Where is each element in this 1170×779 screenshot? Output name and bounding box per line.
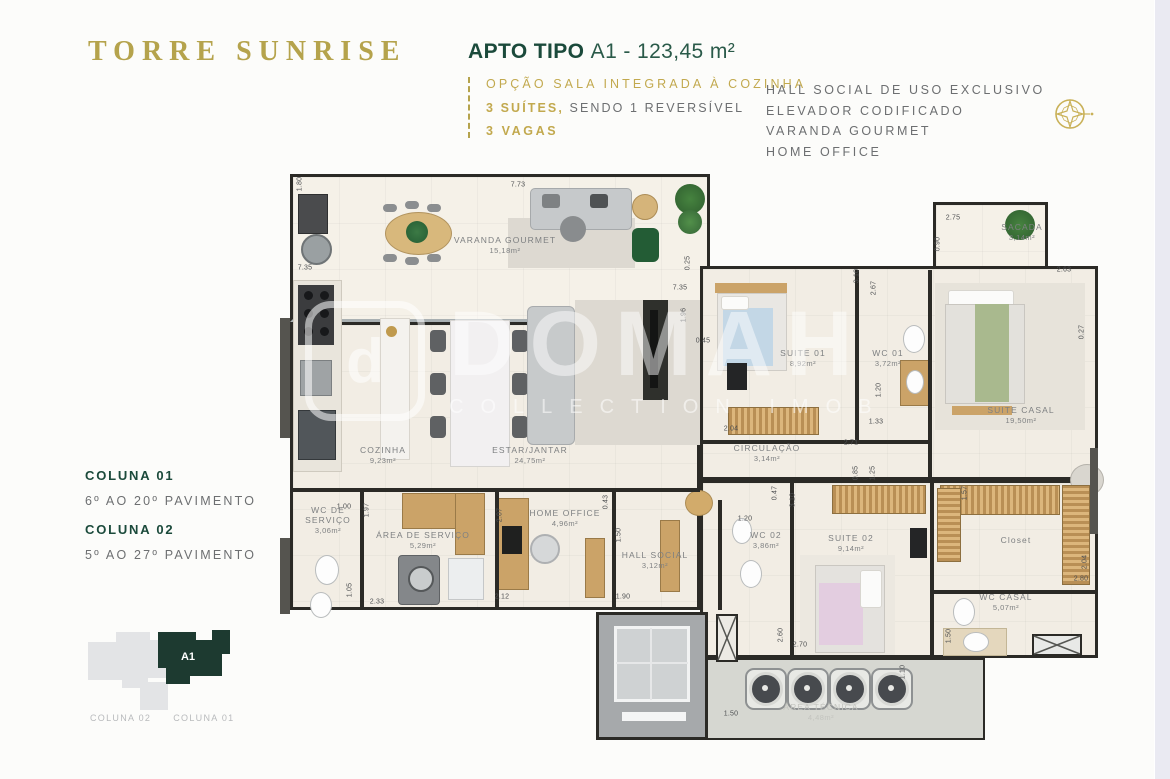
dimension-label: 0.90: [935, 237, 942, 251]
room-area: 15,18m²: [454, 246, 556, 255]
chair: [512, 330, 528, 352]
dining-chair: [427, 204, 441, 212]
monitor: [502, 526, 522, 554]
room-area: 3,86m²: [750, 541, 781, 550]
sofa-pillow: [590, 194, 608, 208]
dimension-label: 0.47: [772, 486, 779, 500]
table-plant: [406, 221, 428, 243]
ac-condenser: [871, 668, 913, 710]
apartment-title: APTO TIPO A1 - 123,45 m²: [468, 40, 768, 64]
kitchen-sink: [300, 360, 332, 396]
page: TORRE SUNRISE APTO TIPO A1 - 123,45 m² O…: [0, 0, 1170, 779]
feature-item: HOME OFFICE: [766, 142, 1045, 163]
wc-servico-sink: [310, 592, 332, 618]
dimension-label: 7.35: [298, 265, 312, 272]
laundry-tank: [448, 558, 484, 600]
room-label: Closet: [1001, 535, 1032, 545]
room-name: WC DE SERVIÇO: [305, 505, 351, 525]
wall: [930, 480, 934, 658]
wc-servico-toilet: [315, 555, 339, 585]
room-name: Closet: [1001, 535, 1032, 545]
dimension-label: 2.67: [871, 281, 878, 295]
suite02-wardrobe: [832, 485, 926, 514]
dimension-label: 2.71: [844, 440, 858, 447]
apartment-details: OPÇÃO SALA INTEGRADA À COZINHA 3 SUÍTES,…: [468, 77, 768, 138]
room-name: SUITE 02: [828, 533, 874, 543]
room-name: SUITE 01: [780, 348, 826, 358]
suite02-cover: [819, 583, 863, 645]
dimension-label: 1.50: [946, 629, 953, 643]
elevator-cab-divider-v: [650, 628, 652, 700]
vagas-line: 3 VAGAS: [486, 124, 768, 138]
room-label: HALL SOCIAL3,12m²: [622, 550, 689, 570]
dimension-label: 0.27: [1079, 325, 1086, 339]
dimension-label: 1.20: [738, 516, 752, 523]
elevator-door: [622, 712, 686, 721]
suite02-tv: [910, 528, 927, 558]
washer-door: [408, 566, 434, 592]
wine-rack: [585, 538, 605, 598]
wall: [718, 500, 722, 610]
dimension-label: 3.10: [854, 269, 861, 283]
dining-chair: [405, 257, 419, 265]
feature-item: HALL SOCIAL DE USO EXCLUSIVO: [766, 80, 1045, 101]
room-area: 3,14m²: [1001, 233, 1043, 242]
room-area: 24,75m²: [492, 456, 568, 465]
room-name: SACADA: [1001, 222, 1043, 232]
burner: [320, 327, 329, 336]
burner: [304, 309, 313, 318]
oven-top: [301, 234, 332, 265]
room-name: VARANDA GOURMET: [454, 235, 556, 245]
suites-line: 3 SUÍTES, SENDO 1 REVERSÍVEL: [486, 101, 768, 115]
feature-item: ELEVADOR CODIFICADO: [766, 101, 1045, 122]
compass-icon: [1050, 94, 1096, 136]
dimension-label: 1.57: [962, 486, 969, 500]
dimension-label: 1.25: [870, 466, 877, 480]
room-area: 4,96m²: [529, 519, 600, 528]
pillar: [280, 318, 290, 438]
dimension-label: 1.33: [869, 419, 883, 426]
sofa-pillow: [542, 194, 560, 208]
wc-casal-sink: [963, 632, 989, 652]
room-name: ESTAR/JANTAR: [492, 445, 568, 455]
office-chair: [530, 534, 560, 564]
tv-screen: [650, 310, 658, 388]
room-label: ESTAR/JANTAR24,75m²: [492, 445, 568, 465]
column-range: 5º AO 27º PAVIMENTO: [85, 548, 256, 562]
option-line: OPÇÃO SALA INTEGRADA À COZINHA: [486, 77, 768, 91]
columns-info: COLUNA 016º AO 20º PAVIMENTOCOLUNA 025º …: [85, 468, 256, 576]
wall: [928, 270, 932, 480]
dimension-label: 7.35: [673, 285, 687, 292]
suite01-cover: [723, 308, 773, 366]
dining-chair: [383, 204, 397, 212]
room-label: CIRCULAÇÃO3,14m²: [734, 443, 801, 463]
room-area: 5,07m²: [979, 603, 1032, 612]
dimension-label: 1.10: [900, 665, 907, 679]
room-label: HOME OFFICE4,96m²: [529, 508, 600, 528]
elevator-cab-divider-h: [616, 662, 688, 664]
keyplan-other-units: [88, 632, 166, 688]
wc-casal-toilet: [953, 598, 975, 626]
pillow: [721, 296, 749, 310]
room-label: SACADA3,14m²: [1001, 222, 1043, 242]
dimension-label: 1.50: [724, 711, 738, 718]
dimension-label: 1.50: [616, 528, 623, 542]
closet-wardrobe-left: [937, 488, 961, 562]
chair: [512, 373, 528, 395]
dimension-label: 1.96: [681, 308, 688, 322]
room-area: 5,29m²: [376, 541, 470, 550]
chair: [430, 416, 446, 438]
dimension-label: 1.90: [616, 594, 630, 601]
dimension-label: 2.60: [778, 628, 785, 642]
room-label: WC 013,72m²: [872, 348, 903, 368]
viewer-edge-strip: [1154, 0, 1170, 779]
chair: [430, 330, 446, 352]
column-label: COLUNA 01: [85, 468, 256, 483]
floorplan: d DOMAH COLLECTION IMOB VARANDA GOURMET1…: [280, 168, 1115, 750]
casal-runner: [975, 304, 1009, 402]
keyplan-unit-label: A1: [181, 651, 195, 663]
dimension-label: 0.85: [853, 466, 860, 480]
dimension-label: 1.05: [347, 583, 354, 597]
hall-round-table: [685, 490, 713, 516]
living-sofa: [527, 306, 575, 445]
dimension-label: 0.45: [696, 338, 710, 345]
dimension-label: 2.07: [497, 508, 504, 522]
room-label: COZINHA9,23m²: [360, 445, 406, 465]
dimension-label: 2.70: [793, 642, 807, 649]
dimension-label: 2.04: [724, 426, 738, 433]
room-label: WC CASAL5,07m²: [979, 592, 1032, 612]
dimension-label: 1.80: [297, 177, 304, 191]
dimension-label: 3.10: [790, 493, 797, 507]
room-name: SUITE CASAL: [987, 405, 1054, 415]
keyplan-caption: COLUNA 01: [173, 713, 234, 723]
room-area: 9,23m²: [360, 456, 406, 465]
duct-shaft: [716, 614, 738, 662]
burner: [320, 291, 329, 300]
dimension-label: 2.80: [1074, 576, 1088, 583]
room-label: WC 023,86m²: [750, 530, 781, 550]
column-label: COLUNA 02: [85, 522, 256, 537]
elevator-cab: [614, 626, 690, 702]
dimension-label: 0.43: [603, 495, 610, 509]
room-name: HALL SOCIAL: [622, 550, 689, 560]
apartment-type-label: APTO TIPO: [468, 40, 584, 63]
room-area: 3,12m²: [622, 561, 689, 570]
room-label: SUITE 018,92m²: [780, 348, 826, 368]
chair: [430, 373, 446, 395]
room-area: 3,14m²: [734, 454, 801, 463]
room-name: HOME OFFICE: [529, 508, 600, 518]
fridge: [298, 410, 336, 460]
dimension-label: 2.04: [1082, 555, 1089, 569]
green-armchair: [632, 228, 659, 262]
wall: [495, 488, 499, 610]
room-label: VARANDA GOURMET15,18m²: [454, 235, 556, 255]
pillar: [280, 538, 290, 614]
keyplan-core: [140, 682, 168, 710]
room-name: WC 01: [872, 348, 903, 358]
wall: [612, 488, 616, 610]
plant: [678, 210, 702, 234]
ottoman: [560, 216, 586, 242]
suite01-wardrobe: [728, 407, 819, 435]
dimension-label: 1.20: [876, 383, 883, 397]
dimension-label: 2.75: [946, 215, 960, 222]
suites-rest: SENDO 1 REVERSÍVEL: [570, 101, 745, 115]
wall: [855, 270, 859, 442]
kitchen-island: [380, 318, 410, 460]
closet-wardrobe-right: [1062, 485, 1090, 585]
burner: [304, 291, 313, 300]
burner: [304, 327, 313, 336]
wc02-toilet: [740, 560, 762, 588]
dining-chair: [427, 254, 441, 262]
suites-count: 3 SUÍTES,: [486, 101, 564, 115]
dimension-label: 2.12: [495, 594, 509, 601]
suite01-headboard: [715, 283, 787, 293]
apartment-type-value: A1 - 123,45 m²: [591, 40, 736, 63]
room-label: WC DE SERVIÇO3,06m²: [300, 505, 356, 535]
brand-title: TORRE SUNRISE: [88, 36, 406, 68]
features-list: HALL SOCIAL DE USO EXCLUSIVOELEVADOR COD…: [766, 80, 1045, 162]
pillow: [860, 570, 882, 608]
shower-box: [1032, 634, 1082, 656]
keyplan: A1: [78, 620, 248, 720]
dimension-label: 7.73: [511, 182, 525, 189]
room-name: WC 02: [750, 530, 781, 540]
keyplan-captions: COLUNA 02COLUNA 01: [90, 713, 234, 723]
room-label: SUITE CASAL19,50m²: [987, 405, 1054, 425]
dining-chair: [405, 201, 419, 209]
room-area: 9,14m²: [828, 544, 874, 553]
dimension-label: 1.97: [364, 503, 371, 517]
wc01-toilet: [903, 325, 925, 353]
ac-condenser: [745, 668, 787, 710]
dimension-label: 2.33: [370, 599, 384, 606]
room-area: 19,50m²: [987, 416, 1054, 425]
apartment-header: APTO TIPO A1 - 123,45 m² OPÇÃO SALA INTE…: [468, 40, 768, 138]
room-label: ÁREA DE SERVIÇO5,29m²: [376, 530, 470, 550]
burner: [320, 309, 329, 318]
room-name: ÁREA DE SERVIÇO: [376, 530, 470, 540]
dining-chair: [383, 254, 397, 262]
suite01-desk: [727, 363, 747, 390]
dimension-label: 0.25: [685, 256, 692, 270]
wc01-sink: [906, 370, 924, 394]
island-sink: [386, 326, 397, 337]
column-range: 6º AO 20º PAVIMENTO: [85, 494, 256, 508]
room-area: 3,72m²: [872, 359, 903, 368]
room-name: CIRCULAÇÃO: [734, 443, 801, 453]
chair: [512, 416, 528, 438]
pillar: [1090, 448, 1098, 534]
room-name: COZINHA: [360, 445, 406, 455]
room-area: 3,06m²: [300, 526, 356, 535]
dimension-label: 2.63: [1057, 267, 1071, 274]
room-area: 4,48m²: [783, 713, 858, 722]
room-label: ÁREA TÉCNICA4,48m²: [783, 702, 858, 722]
room-label: SUITE 029,14m²: [828, 533, 874, 553]
room-name: ÁREA TÉCNICA: [783, 702, 858, 712]
keyplan-caption: COLUNA 02: [90, 713, 151, 723]
room-name: WC CASAL: [979, 592, 1032, 602]
feature-item: VARANDA GOURMET: [766, 121, 1045, 142]
microwave: [298, 194, 328, 234]
side-table: [632, 194, 658, 220]
room-area: 8,92m²: [780, 359, 826, 368]
